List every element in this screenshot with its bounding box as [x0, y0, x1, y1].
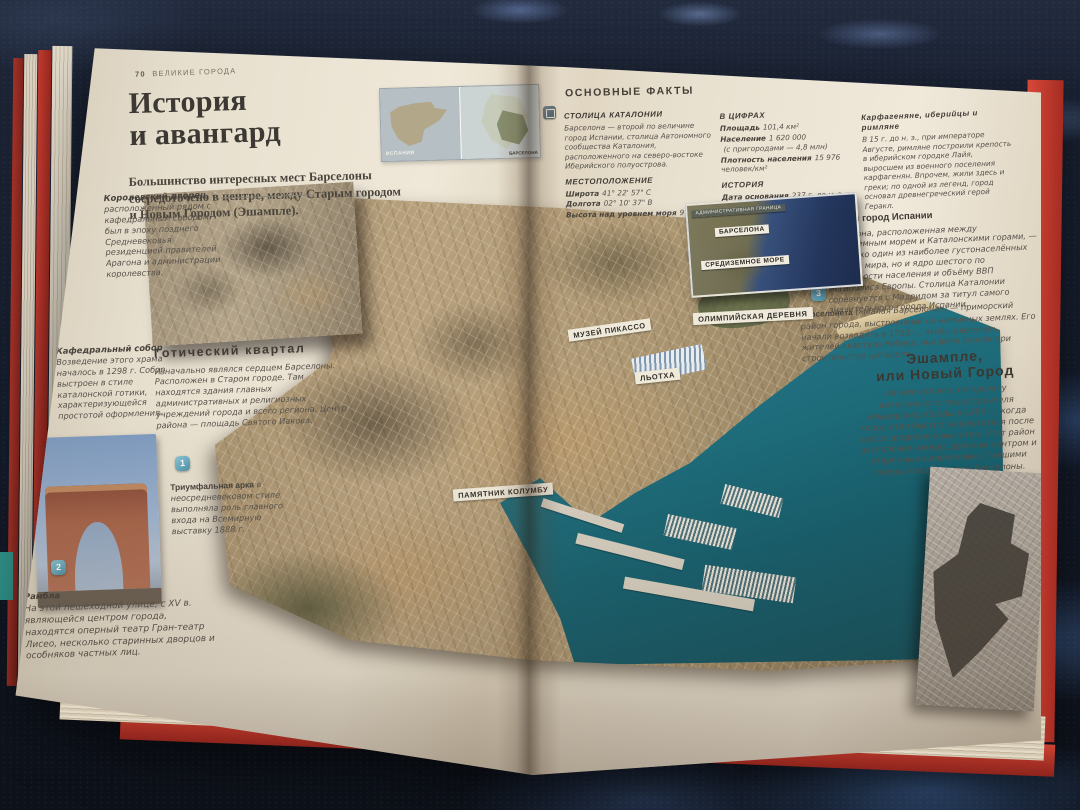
- region-inset-label: БАРСЕЛОНА: [509, 150, 538, 156]
- key-facts-icon: [543, 106, 556, 119]
- numbers-row-label: Население: [720, 133, 766, 143]
- eixample-block: Эшампле, или Новый Город начали строить …: [854, 346, 1039, 479]
- rambla-note: Рамбла На этой пешеходной улице, с XV в.…: [24, 585, 218, 664]
- spain-label: ИСПАНИЯ: [386, 150, 415, 157]
- gothic-quarter-text: Изначально являлся сердцем Барселоны. Ра…: [154, 360, 346, 430]
- left-page-number: 70: [135, 69, 146, 78]
- rambla-note-title: Рамбла: [24, 590, 61, 601]
- page-title-line2: и авангард: [129, 116, 281, 153]
- arch-note: Триумфальная арка в неосредневековом сти…: [170, 478, 302, 537]
- district-highlight-polygon: [916, 467, 1048, 712]
- satellite-region-inset: АДМИНИСТРАТИВНАЯ ГРАНИЦА БАРСЕЛОНА СРЕДИ…: [685, 192, 863, 298]
- montjuic-hill: [200, 543, 415, 673]
- carthage-text: В 15 г. до н. э., при императоре Августе…: [862, 129, 1015, 211]
- royal-palace-note-text: расположенный рядом с кафедральным собор…: [104, 200, 221, 279]
- barcelona-label: БАРСЕЛОНА: [715, 224, 769, 237]
- map-number-badge-1: 1: [175, 456, 191, 472]
- mediterranean-label: СРЕДИЗЕМНОЕ МОРЕ: [701, 255, 789, 270]
- admin-border-label: АДМИНИСТРАТИВНАЯ ГРАНИЦА: [691, 204, 785, 218]
- numbers-row: Плотность населения15 976 человек/км²: [721, 152, 859, 175]
- capital-title: СТОЛИЦА КАТАЛОНИИ: [564, 108, 714, 121]
- key-facts-header: ОСНОВНЫЕ ФАКТЫ: [565, 85, 694, 100]
- cathedral-note-text: Возведение этого храма началось в 1298 г…: [56, 353, 165, 421]
- page-title: История и авангард: [128, 84, 281, 153]
- left-section-header: ВЕЛИКИЕ ГОРОДА: [152, 66, 236, 78]
- location-row-label: Долгота: [566, 199, 601, 209]
- spain-locator-inset: ИСПАНИЯ БАРСЕЛОНА: [379, 84, 541, 162]
- numbers-row-value: 101,4 км²: [763, 122, 799, 132]
- eixample-text: начали строить по проекту каталонского г…: [856, 381, 1040, 478]
- royal-palace-note: Королевский дворец, расположенный рядом …: [104, 189, 225, 280]
- book: 70 ВЕЛИКИЕ ГОРОДА История и авангард Бол…: [5, 28, 1060, 778]
- location-row-value: 41° 22' 57" С: [602, 187, 651, 197]
- left-running-header: 70 ВЕЛИКИЕ ГОРОДА: [135, 66, 237, 79]
- arc-de-triomf-photo: [32, 434, 162, 608]
- photo-of-open-book: 70 ВЕЛИКИЕ ГОРОДА История и авангард Бол…: [0, 0, 1080, 810]
- facts-column-carthage: Карфагеняне, иберийцы и римляне В 15 г. …: [861, 107, 1015, 211]
- spain-map-panel: ИСПАНИЯ: [380, 87, 461, 161]
- location-row-label: Высота над уровнем моря: [566, 208, 677, 219]
- numbers-row-label: Площадь: [720, 123, 760, 133]
- gothic-quarter-block: Готический квартал Изначально являлся се…: [154, 339, 353, 431]
- location-title: МЕСТОПОЛОЖЕНИЕ: [565, 174, 715, 187]
- map-number-badge-2: 2: [51, 560, 67, 576]
- right-page-number: 71: [999, 75, 1010, 84]
- rambla-note-text: На этой пешеходной улице, с XV в. являющ…: [24, 598, 215, 661]
- badge-1-number: 1: [180, 458, 185, 468]
- right-section-header: Барселона: [944, 75, 993, 85]
- catalonia-map-panel: БАРСЕЛОНА: [460, 85, 540, 159]
- eixample-district-inset: [916, 467, 1048, 712]
- capital-text: Барселона — второй по величине город Исп…: [564, 121, 715, 172]
- book-spread: 70 ВЕЛИКИЕ ГОРОДА История и авангард Бол…: [5, 28, 1060, 778]
- badge-2-number: 2: [56, 562, 61, 572]
- spain-silhouette: [386, 96, 450, 151]
- location-row-label: Широта: [566, 189, 600, 199]
- numbers-row-value: 1 620 000: [769, 132, 806, 142]
- badge-3-number: 3: [816, 288, 821, 298]
- right-running-header: Барселона 71: [860, 75, 1010, 87]
- location-row-value: 02° 10' 37" В: [604, 198, 653, 208]
